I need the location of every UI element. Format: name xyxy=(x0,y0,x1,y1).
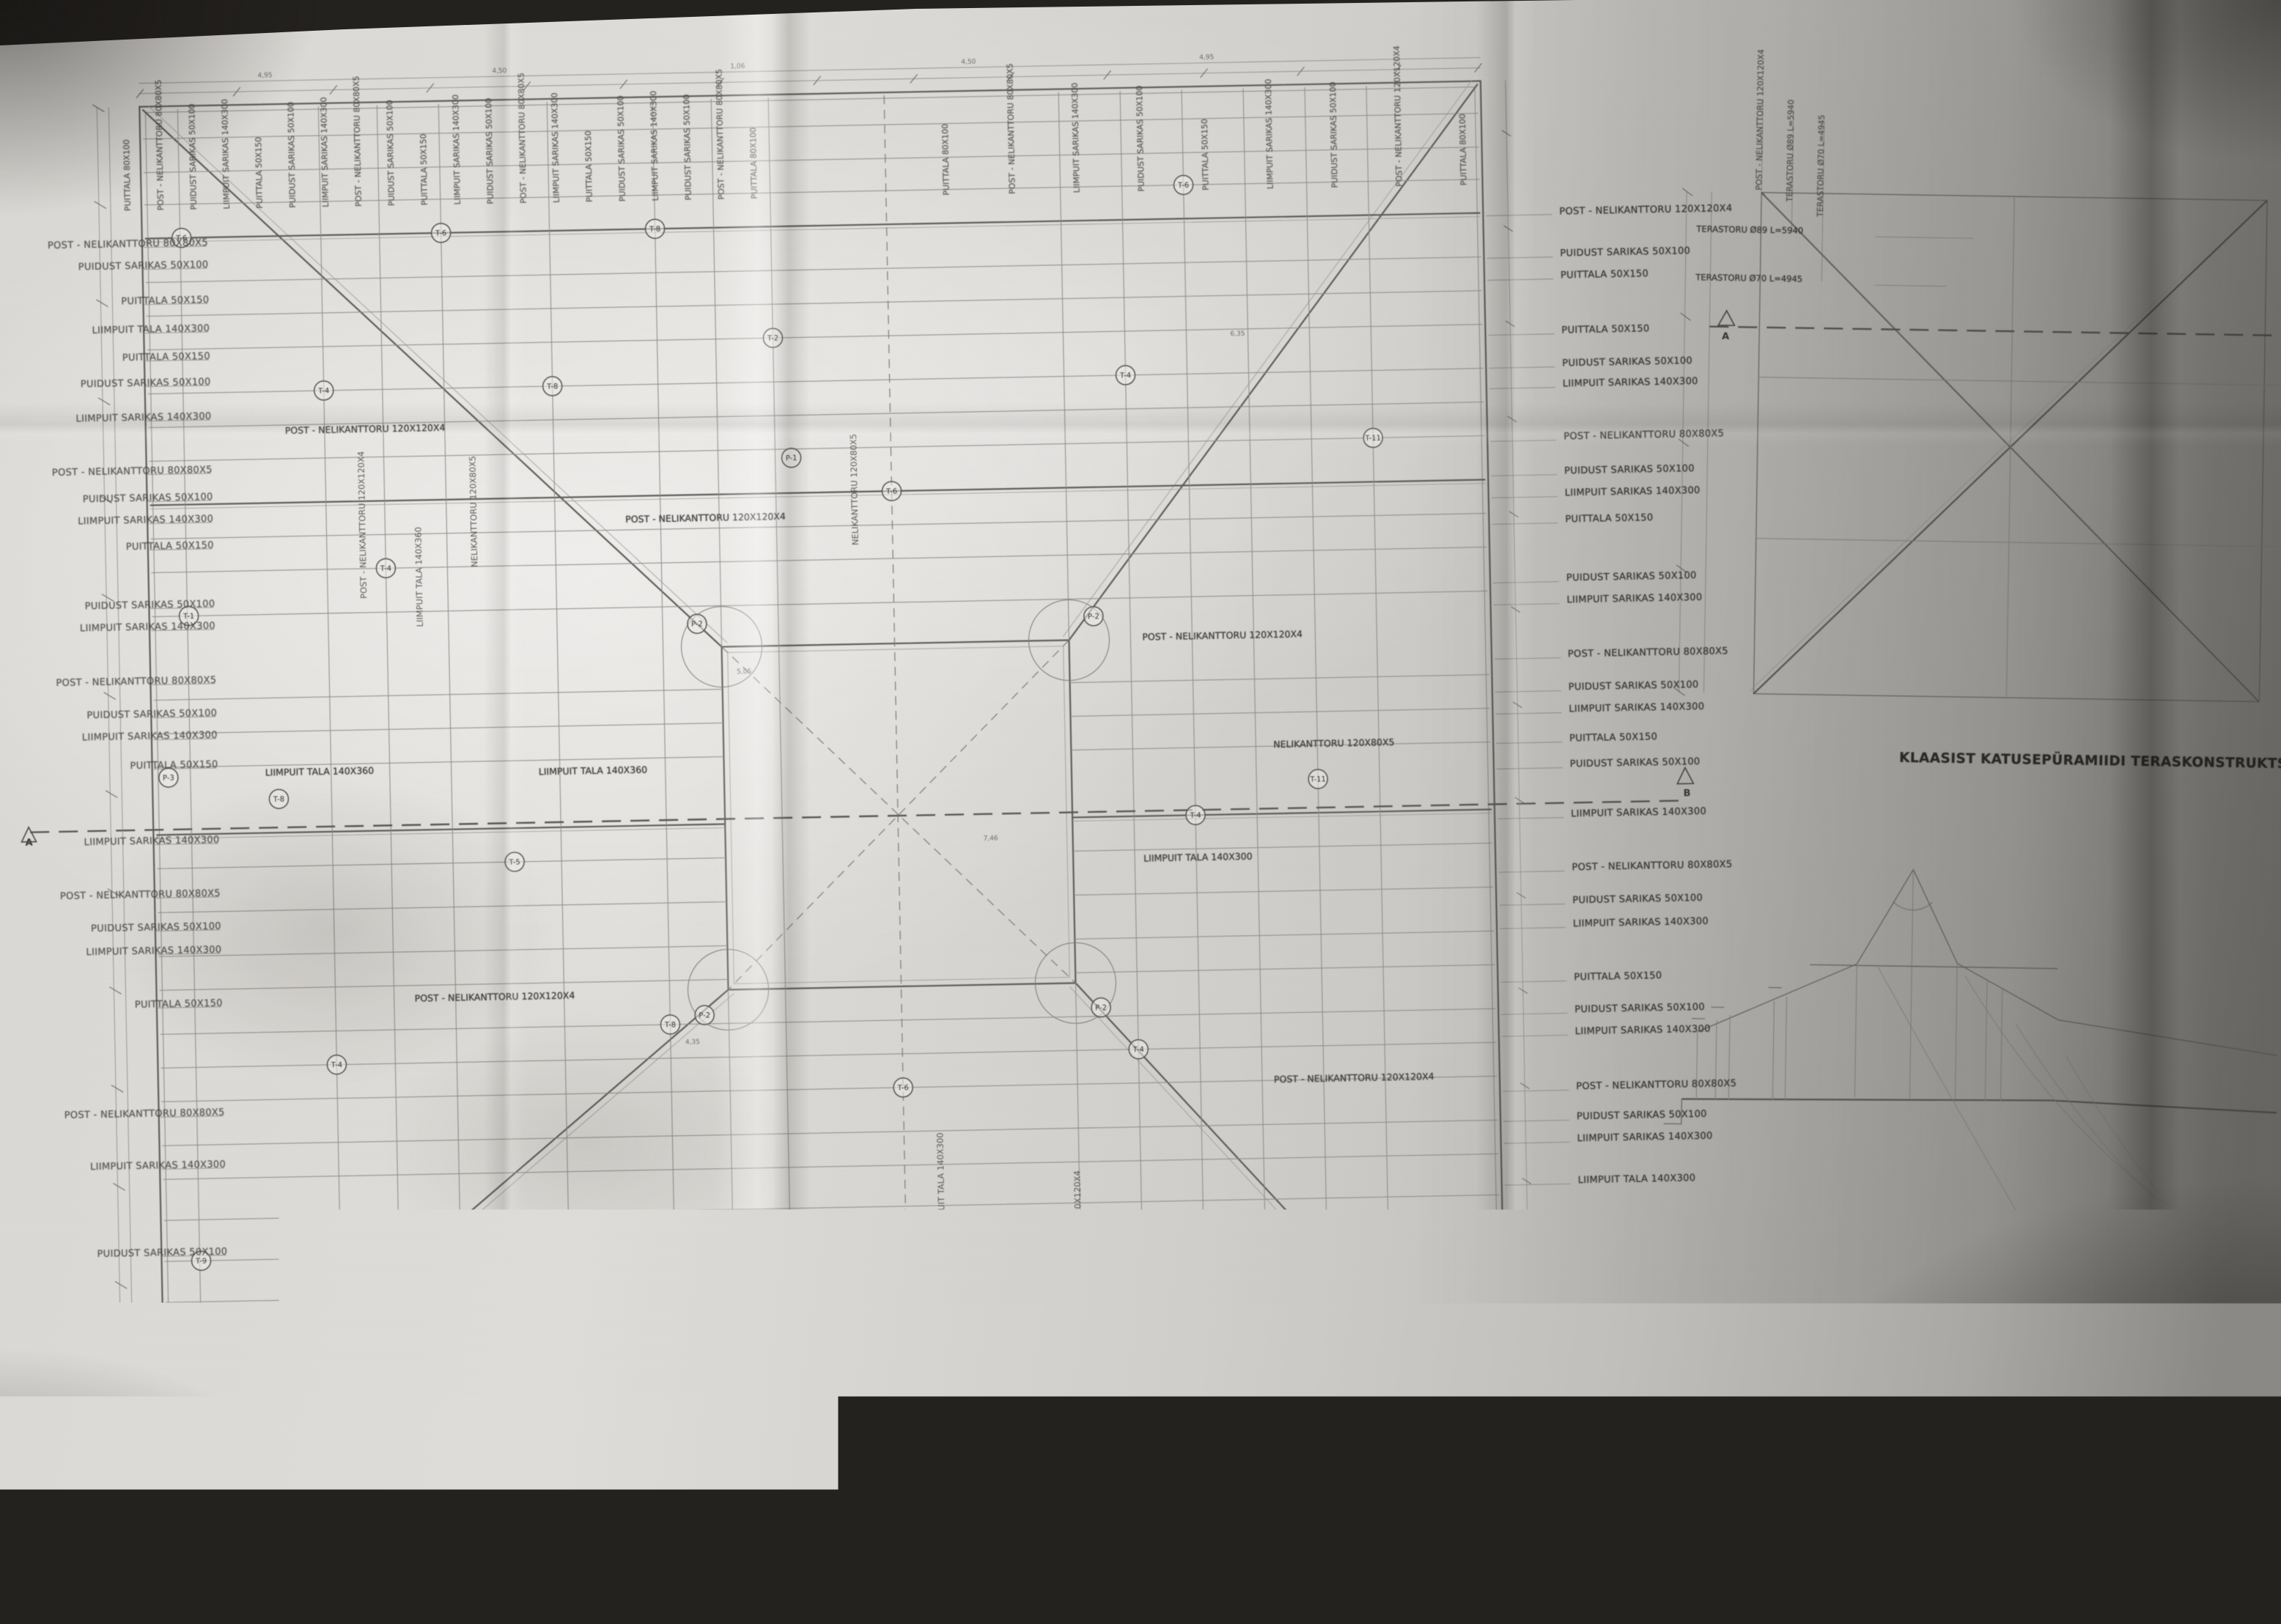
table-row: P - 3120X120X4 xyxy=(2142,1357,2280,1380)
field-value2: Vatsla Küla, Sassi xyxy=(2173,1560,2281,1573)
titleblock-row: Tähis: 0703 xyxy=(2146,1494,2281,1519)
field-label: Joonis: xyxy=(2147,1587,2166,1594)
col-header: TALA NUMBER xyxy=(1810,1280,1855,1300)
col-header: MÕÕDUD mm xyxy=(2187,1303,2255,1324)
talade-tabel: TALADE TABEL TALA NUMBER MÕÕDUD mm L mm … xyxy=(1804,1255,2046,1507)
section-scale: M 1/100 xyxy=(2097,1178,2156,1194)
section-title: LÕIGE AB - M 1/100 xyxy=(1970,1173,2156,1195)
titleblock-row: Tellija: Hr. Mart Laisk xyxy=(2145,1516,2281,1549)
col-header: ARV xyxy=(2004,1286,2046,1306)
col-header: L mm xyxy=(2255,1305,2281,1324)
postide-table: POST NUMBER MÕÕDUD mm L mm P - 180X80X5 … xyxy=(2142,1302,2281,1380)
col-header: L mm xyxy=(1939,1284,2005,1304)
field-label: Objekt: xyxy=(2148,1549,2169,1556)
blueprint-photo: T-6 T-6 T-8 T-6 T-4 T-8 T-2 T-4 T-1 T-4 … xyxy=(0,0,2281,1624)
field-label: Tähis: xyxy=(2149,1497,2166,1504)
col-header: MÕÕDUD mm xyxy=(1854,1281,1940,1302)
titleblock-row: Joonis: KANDE KONSTRUKTSIOON M 1:50 xyxy=(2144,1584,2281,1623)
postide-title: POSTIDE TABEL xyxy=(2144,1260,2281,1299)
field-value: 0703 xyxy=(2174,1496,2281,1510)
titleblock-row: Objekt: ERAMU, Harjumaa Vatsla Küla, Sas… xyxy=(2145,1546,2281,1587)
col-header: POST NUMBER xyxy=(2143,1302,2188,1322)
field-value: Hr. Mart Laisk xyxy=(2174,1518,2281,1540)
title-block: Tähis: 0703 Tellija: Hr. Mart Laisk Obje… xyxy=(2143,1494,2281,1624)
field-value2: M 1:50 xyxy=(2173,1598,2281,1611)
paper-sheet: T-6 T-6 T-8 T-6 T-4 T-8 T-2 T-4 T-1 T-4 … xyxy=(0,0,2281,1624)
field-label: Tellija: xyxy=(2148,1519,2167,1527)
postide-tabel: POSTIDE TABEL POST NUMBER MÕÕDUD mm L mm… xyxy=(2142,1260,2281,1380)
talade-table: TALA NUMBER MÕÕDUD mm L mm ARV T - 1140X… xyxy=(1804,1280,2046,1507)
section-title-sep: - xyxy=(2081,1178,2085,1192)
section-title-text: LÕIGE AB xyxy=(1970,1173,2070,1193)
